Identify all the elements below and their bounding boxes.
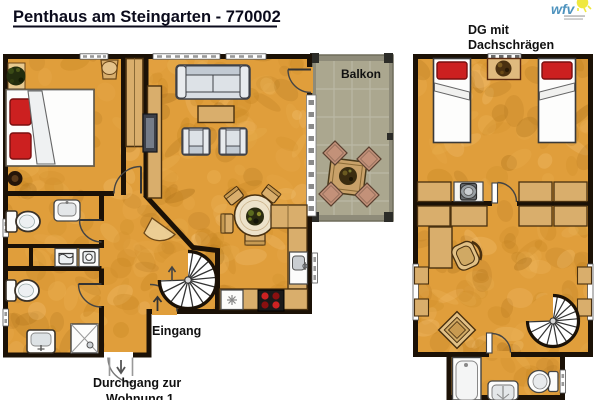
- svg-text:wfv: wfv: [551, 1, 576, 17]
- svg-text:Eingang: Eingang: [152, 324, 201, 338]
- svg-text:Durchgang zur: Durchgang zur: [93, 376, 181, 390]
- svg-text:Penthaus am Steingarten - 7700: Penthaus am Steingarten - 770002: [13, 8, 281, 26]
- svg-text:Dachschrägen: Dachschrägen: [468, 38, 554, 52]
- svg-text:Balkon: Balkon: [341, 67, 381, 81]
- svg-text:Wohnung 1: Wohnung 1: [106, 392, 174, 400]
- svg-text:DG mit: DG mit: [468, 23, 510, 37]
